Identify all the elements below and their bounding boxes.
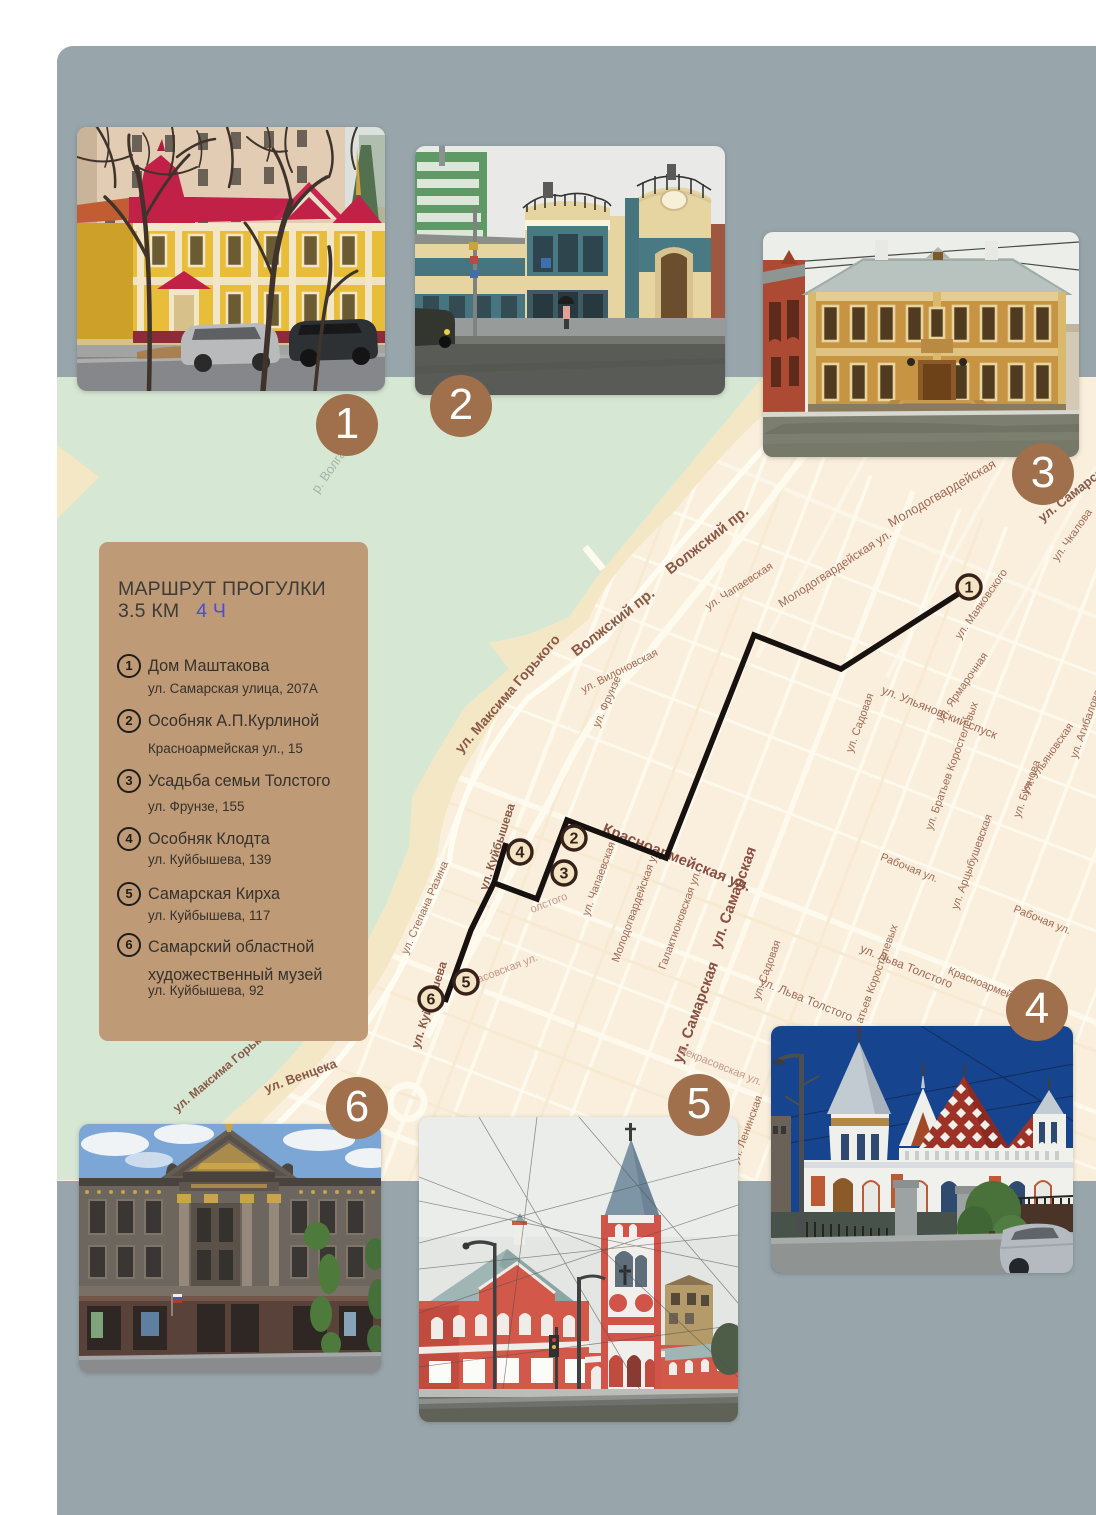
svg-text:6: 6 [427, 992, 436, 1009]
svg-text:4: 4 [516, 845, 525, 862]
svg-text:5: 5 [462, 975, 471, 992]
svg-text:1: 1 [965, 580, 974, 597]
svg-text:3: 3 [560, 866, 569, 883]
svg-text:2: 2 [570, 831, 579, 848]
